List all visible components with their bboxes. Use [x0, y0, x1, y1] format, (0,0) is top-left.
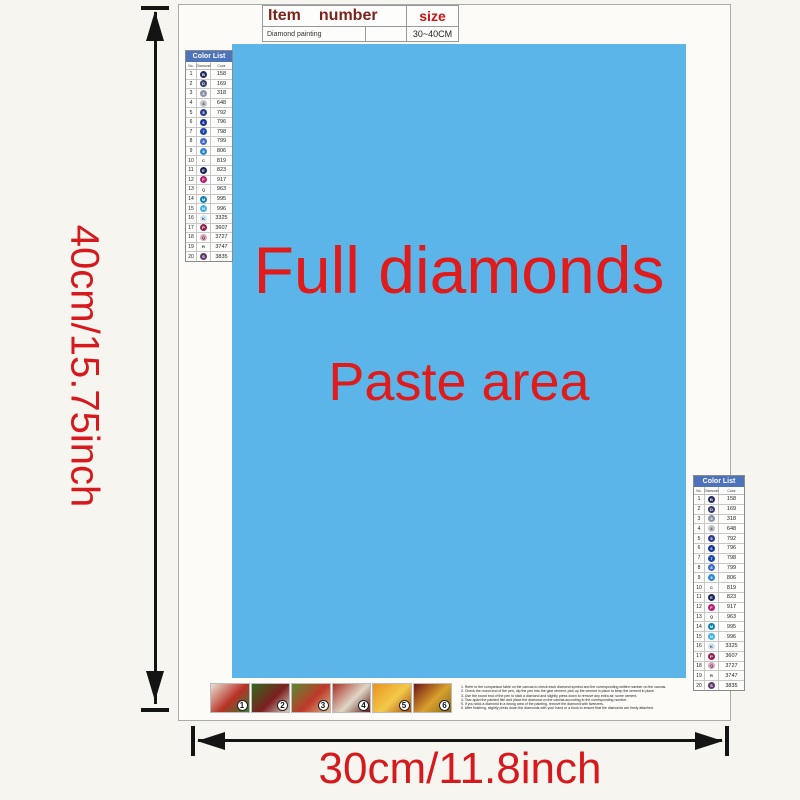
row-number: 11	[186, 166, 197, 175]
row-number: 19	[186, 243, 197, 252]
height-arrow-top-bar	[141, 6, 169, 10]
diamond-color-dot-icon: M	[708, 623, 715, 630]
diamond-symbol-cell: 4	[705, 524, 719, 533]
diamond-color-dot-icon: 9	[200, 148, 207, 155]
diamond-symbol-cell: Q	[705, 613, 719, 622]
color-code: 3835	[719, 683, 744, 689]
row-number: 14	[694, 622, 705, 631]
color-list-row: 33318	[694, 514, 744, 524]
diamond-symbol-cell: B	[705, 495, 719, 504]
row-number: 15	[186, 204, 197, 213]
step-image: 2	[251, 683, 291, 713]
color-list-row: 11E823	[694, 592, 744, 602]
diamond-symbol-cell: 3	[705, 515, 719, 524]
row-number: 14	[186, 195, 197, 204]
color-code: 318	[719, 516, 744, 522]
color-list-right: Color List No. Diamond Color 1B1582D1693…	[693, 475, 745, 691]
color-code: 318	[211, 90, 232, 96]
diamond-symbol-cell: 8	[197, 137, 211, 146]
number-header-label: number	[319, 7, 378, 25]
step-number-badge: 2	[277, 700, 288, 711]
row-number: 12	[694, 603, 705, 612]
diamond-color-dot-icon: E	[200, 167, 207, 174]
color-code: 792	[211, 110, 232, 116]
diamond-symbol-cell: E	[705, 593, 719, 602]
row-number: 16	[694, 642, 705, 651]
width-arrow-right-head-icon	[695, 732, 723, 750]
color-list-row: 19R3747	[694, 670, 744, 680]
diamond-color-dot-icon: K	[200, 215, 207, 222]
color-code: 3727	[719, 663, 744, 669]
diamond-color-dot-icon: 7	[200, 128, 207, 135]
diamond-symbol-cell: M	[705, 622, 719, 631]
diamond-symbol-cell: N	[197, 204, 211, 213]
color-code: 3747	[211, 244, 232, 250]
diamond-symbol-cell: P	[197, 224, 211, 233]
color-list-row: 88799	[186, 136, 232, 146]
color-list-row: 55792	[694, 533, 744, 543]
row-number: 12	[186, 176, 197, 185]
color-code: 917	[211, 177, 232, 183]
diamond-symbol-cell: 9	[705, 573, 719, 582]
step-image: 6	[413, 683, 453, 713]
paste-area-subtitle: Paste area	[232, 349, 686, 415]
color-list-row: 1B158	[186, 70, 232, 79]
diamond-color-dot-icon: Q	[200, 234, 207, 241]
diamond-symbol-cell: P	[705, 652, 719, 661]
color-list-row: 66796	[694, 543, 744, 553]
color-code: 792	[719, 536, 744, 542]
row-number: 3	[694, 515, 705, 524]
row-number: 20	[186, 252, 197, 261]
size-header-label: size	[407, 8, 458, 24]
color-code: 158	[719, 496, 744, 502]
diamond-symbol-cell: N	[705, 632, 719, 641]
color-code: 806	[211, 148, 232, 154]
row-number: 18	[186, 233, 197, 242]
diamond-color-dot-icon: 4	[708, 525, 715, 532]
diamond-color-dot-icon: 5	[708, 535, 715, 542]
column-color: Color	[719, 487, 744, 494]
column-diamond: Diamond	[197, 62, 211, 69]
height-arrow-bottom-bar	[141, 708, 169, 712]
row-number: 3	[186, 89, 197, 98]
color-code: 917	[719, 604, 744, 610]
color-list-rows: 1B1582D169333184464855792667967779888799…	[694, 495, 744, 690]
color-code: 806	[719, 575, 744, 581]
color-code: 3835	[211, 254, 232, 260]
diamond-symbol-cell: 8	[705, 564, 719, 573]
color-list-columns: No. Diamond Color	[186, 62, 232, 70]
diamond-color-dot-icon: 8	[708, 564, 715, 571]
color-list-row: 20S3835	[186, 251, 232, 261]
color-code: 996	[211, 206, 232, 212]
diamond-symbol-cell: C	[705, 583, 719, 592]
diamond-color-dot-icon: 3	[200, 90, 207, 97]
row-number: 1	[186, 70, 197, 79]
color-list-row: 44648	[186, 98, 232, 108]
number-value-empty	[366, 27, 407, 41]
diamond-color-dot-icon: F	[708, 604, 715, 611]
color-list-row: 14M995	[186, 194, 232, 204]
width-arrow-line	[198, 739, 722, 742]
paste-area-title: Full diamonds	[232, 230, 686, 310]
row-number: 6	[694, 544, 705, 553]
row-number: 18	[694, 662, 705, 671]
diamond-color-dot-icon: 6	[200, 119, 207, 126]
color-list-row: 13Q963	[186, 184, 232, 194]
color-list-columns: No. Diamond Color	[694, 487, 744, 495]
color-list-rows: 1B1582D169333184464855792667967779888799…	[186, 70, 232, 261]
instruction-text-block: 1. Refer to the comparison table on the …	[461, 685, 711, 711]
color-list-row: 33318	[186, 88, 232, 98]
diamond-symbol-cell: Q	[197, 233, 211, 242]
color-code: 648	[211, 100, 232, 106]
instruction-line: 6. After finishing, slightly press down …	[461, 706, 711, 710]
row-number: 11	[694, 593, 705, 602]
color-code: 798	[211, 129, 232, 135]
color-list-row: 18Q3727	[694, 661, 744, 671]
diamond-symbol-cell: Q	[705, 662, 719, 671]
width-arrow-left-bar	[191, 726, 195, 756]
table-data-row: Diamond painting 30~40CM	[263, 27, 458, 41]
color-list-row: 17P3607	[186, 223, 232, 233]
color-code: 799	[719, 565, 744, 571]
diamond-symbol-glyph: C	[200, 157, 207, 164]
diamond-symbol-cell: M	[197, 195, 211, 204]
size-value: 30~40CM	[407, 29, 458, 39]
diamond-color-dot-icon: 7	[708, 555, 715, 562]
color-list-row: 15N996	[186, 203, 232, 213]
color-list-title: Color List	[694, 476, 744, 487]
diamond-color-dot-icon: Q	[708, 662, 715, 669]
step-number-badge: 4	[358, 700, 369, 711]
diamond-color-dot-icon: F	[200, 176, 207, 183]
item-number-size-table: Item number size Diamond painting 30~40C…	[262, 5, 459, 42]
row-number: 16	[186, 214, 197, 223]
diamond-color-dot-icon: N	[200, 205, 207, 212]
width-dimension-label: 30cm/11.8inch	[319, 744, 602, 794]
color-list-row: 19R3747	[186, 242, 232, 252]
row-number: 8	[186, 137, 197, 146]
color-list-row: 11E823	[186, 165, 232, 175]
color-list-row: 66796	[186, 117, 232, 127]
width-arrow-right-bar	[725, 726, 729, 756]
row-number: 2	[186, 80, 197, 89]
diamond-color-dot-icon: D	[708, 506, 715, 513]
header-item-number: Item number	[263, 6, 407, 26]
row-number: 17	[694, 652, 705, 661]
instruction-step-images: 123456	[210, 683, 452, 713]
color-list-row: 17P3607	[694, 651, 744, 661]
row-number: 19	[694, 671, 705, 680]
row-number: 9	[694, 573, 705, 582]
diamond-symbol-cell: R	[705, 671, 719, 680]
step-number-badge: 5	[399, 700, 410, 711]
color-list-row: 16K3325	[694, 641, 744, 651]
diamond-symbol-cell: 7	[705, 554, 719, 563]
color-list-row: 88799	[694, 563, 744, 573]
color-list-row: 14M995	[694, 621, 744, 631]
diamond-color-dot-icon: P	[708, 653, 715, 660]
step-number-badge: 1	[237, 700, 248, 711]
diamond-symbol-cell: 9	[197, 147, 211, 156]
diamond-color-dot-icon: K	[708, 643, 715, 650]
diamond-color-dot-icon: 3	[708, 515, 715, 522]
diamond-color-dot-icon: M	[200, 196, 207, 203]
diamond-symbol-cell: D	[197, 80, 211, 89]
diamond-color-dot-icon: 5	[200, 109, 207, 116]
diamond-symbol-cell: F	[197, 176, 211, 185]
item-header-label: Item	[268, 7, 301, 25]
color-code: 819	[719, 585, 744, 591]
color-list-row: 12F917	[694, 602, 744, 612]
color-code: 823	[719, 594, 744, 600]
color-code: 3325	[211, 215, 232, 221]
color-code: 3607	[211, 225, 232, 231]
step-image: 4	[332, 683, 372, 713]
color-list-row: 44648	[694, 523, 744, 533]
color-code: 995	[211, 196, 232, 202]
diamond-color-dot-icon: P	[200, 224, 207, 231]
diamond-symbol-cell: S	[197, 252, 211, 261]
color-code: 3325	[719, 643, 744, 649]
column-no: No.	[694, 487, 705, 494]
color-code: 963	[211, 186, 232, 192]
diamond-symbol-cell: K	[705, 642, 719, 651]
color-list-title: Color List	[186, 51, 232, 62]
row-number: 5	[694, 534, 705, 543]
column-diamond: Diamond	[705, 487, 719, 494]
diamond-symbol-cell: 3	[197, 89, 211, 98]
diamond-symbol-glyph: C	[708, 584, 715, 591]
color-list-row: 77798	[186, 127, 232, 137]
diamond-color-dot-icon: B	[708, 496, 715, 503]
row-number: 7	[186, 128, 197, 137]
diamond-symbol-cell: C	[197, 156, 211, 165]
color-code: 798	[719, 555, 744, 561]
column-color: Color	[211, 62, 232, 69]
color-list-row: 55792	[186, 107, 232, 117]
table-header-row: Item number size	[263, 6, 458, 27]
color-code: 819	[211, 158, 232, 164]
height-arrow-down-head-icon	[146, 671, 164, 701]
row-number: 15	[694, 632, 705, 641]
row-number: 8	[694, 564, 705, 573]
color-list-left: Color List No. Diamond Color 1B1582D1693…	[185, 50, 233, 262]
color-code: 3607	[719, 653, 744, 659]
row-number: 5	[186, 108, 197, 117]
color-code: 3727	[211, 234, 232, 240]
color-list-row: 10C819	[186, 155, 232, 165]
diamond-color-dot-icon: B	[200, 71, 207, 78]
color-code: 648	[719, 526, 744, 532]
row-number: 17	[186, 224, 197, 233]
step-number-badge: 6	[439, 700, 450, 711]
height-arrow-line	[154, 12, 157, 704]
row-number: 7	[694, 554, 705, 563]
color-list-row: 2D169	[186, 79, 232, 89]
row-number: 2	[694, 505, 705, 514]
diamond-symbol-cell: 5	[705, 534, 719, 543]
step-image: 3	[291, 683, 331, 713]
row-number: 10	[186, 156, 197, 165]
row-number: 4	[186, 99, 197, 108]
column-no: No.	[186, 62, 197, 69]
color-list-row: 18Q3727	[186, 232, 232, 242]
color-code: 158	[211, 71, 232, 77]
diamond-symbol-glyph: R	[200, 243, 207, 250]
color-list-row: 15N996	[694, 631, 744, 641]
diamond-symbol-cell: D	[705, 505, 719, 514]
diamond-symbol-cell: 6	[705, 544, 719, 553]
color-list-row: 99806	[186, 146, 232, 156]
row-number: 13	[694, 613, 705, 622]
diamond-color-dot-icon: D	[200, 80, 207, 87]
item-value: Diamond painting	[263, 27, 366, 41]
diamond-symbol-glyph: Q	[200, 186, 207, 193]
color-code: 169	[719, 506, 744, 512]
diamond-symbol-cell: K	[197, 214, 211, 223]
step-number-badge: 3	[318, 700, 329, 711]
color-list-row: 99806	[694, 572, 744, 582]
diamond-symbol-cell: 6	[197, 118, 211, 127]
diamond-symbol-cell: B	[197, 70, 211, 79]
color-code: 995	[719, 624, 744, 630]
diamond-symbol-cell: E	[197, 166, 211, 175]
paste-area: Full diamonds Paste area	[232, 44, 686, 678]
diamond-symbol-cell: R	[197, 243, 211, 252]
diamond-symbol-cell: 7	[197, 128, 211, 137]
diamond-color-dot-icon: 4	[200, 100, 207, 107]
color-code: 823	[211, 167, 232, 173]
color-list-row: 12F917	[186, 175, 232, 185]
row-number: 10	[694, 583, 705, 592]
color-list-row: 16K3325	[186, 213, 232, 223]
color-list-row: 1B158	[694, 495, 744, 504]
diamond-color-dot-icon: 6	[708, 545, 715, 552]
color-code: 963	[719, 614, 744, 620]
color-list-row: 77798	[694, 553, 744, 563]
height-dimension-label: 40cm/15.75inch	[62, 225, 107, 507]
row-number: 1	[694, 495, 705, 504]
diamond-color-dot-icon: N	[708, 633, 715, 640]
color-list-row: 2D169	[694, 504, 744, 514]
diamond-symbol-cell: 4	[197, 99, 211, 108]
step-image: 1	[210, 683, 250, 713]
color-list-row: 10C819	[694, 582, 744, 592]
diamond-symbol-glyph: Q	[708, 613, 715, 620]
row-number: 13	[186, 185, 197, 194]
diamond-symbol-cell: F	[705, 603, 719, 612]
color-code: 796	[211, 119, 232, 125]
step-image: 5	[372, 683, 412, 713]
row-number: 9	[186, 147, 197, 156]
color-code: 796	[719, 545, 744, 551]
product-image: Item number size Diamond painting 30~40C…	[0, 0, 800, 800]
diamond-color-dot-icon: 9	[708, 574, 715, 581]
diamond-symbol-cell: 5	[197, 108, 211, 117]
color-code: 996	[719, 634, 744, 640]
diamond-symbol-glyph: R	[708, 672, 715, 679]
color-code: 799	[211, 138, 232, 144]
diamond-color-dot-icon: S	[200, 253, 207, 260]
color-code: 3747	[719, 673, 744, 679]
color-code: 169	[211, 81, 232, 87]
row-number: 4	[694, 524, 705, 533]
diamond-color-dot-icon: E	[708, 594, 715, 601]
diamond-symbol-cell: Q	[197, 185, 211, 194]
color-list-row: 13Q963	[694, 612, 744, 622]
diamond-color-dot-icon: 8	[200, 138, 207, 145]
row-number: 6	[186, 118, 197, 127]
